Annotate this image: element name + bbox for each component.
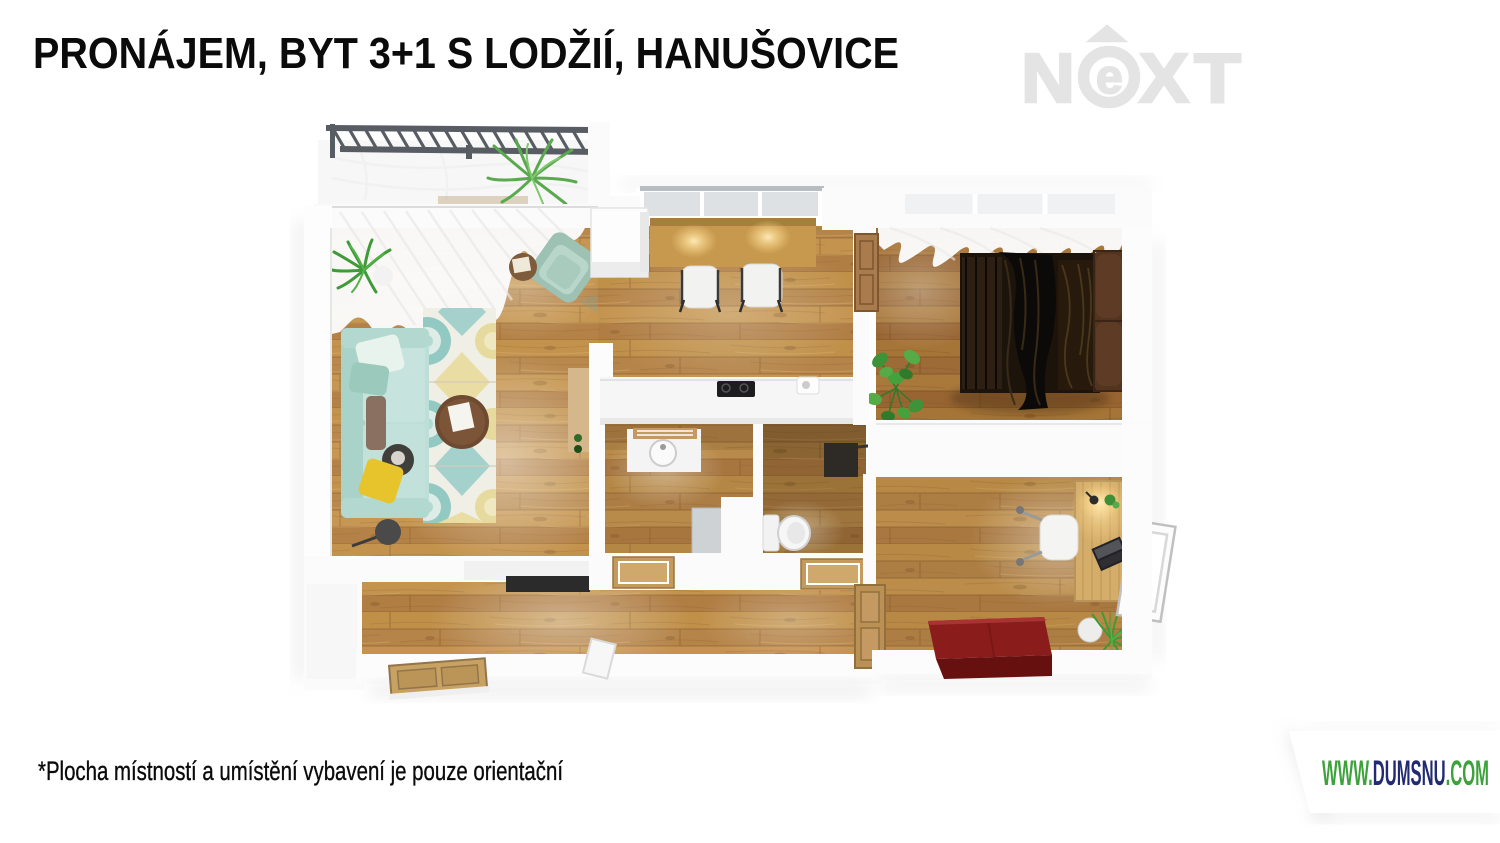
svg-text:T: T [1194, 39, 1241, 117]
svg-text:e: e [1096, 51, 1123, 104]
svg-text:WWW.DUMSNU.COM: WWW.DUMSNU.COM [1322, 754, 1489, 793]
svg-text:*Plocha místností a umístění v: *Plocha místností a umístění vybavení je… [38, 756, 563, 786]
svg-text:X: X [1139, 39, 1189, 117]
svg-text:PRONÁJEM, BYT 3+1 S LODŽIÍ, HA: PRONÁJEM, BYT 3+1 S LODŽIÍ, HANUŠOVICE [33, 27, 899, 78]
svg-text:N: N [1021, 39, 1075, 117]
